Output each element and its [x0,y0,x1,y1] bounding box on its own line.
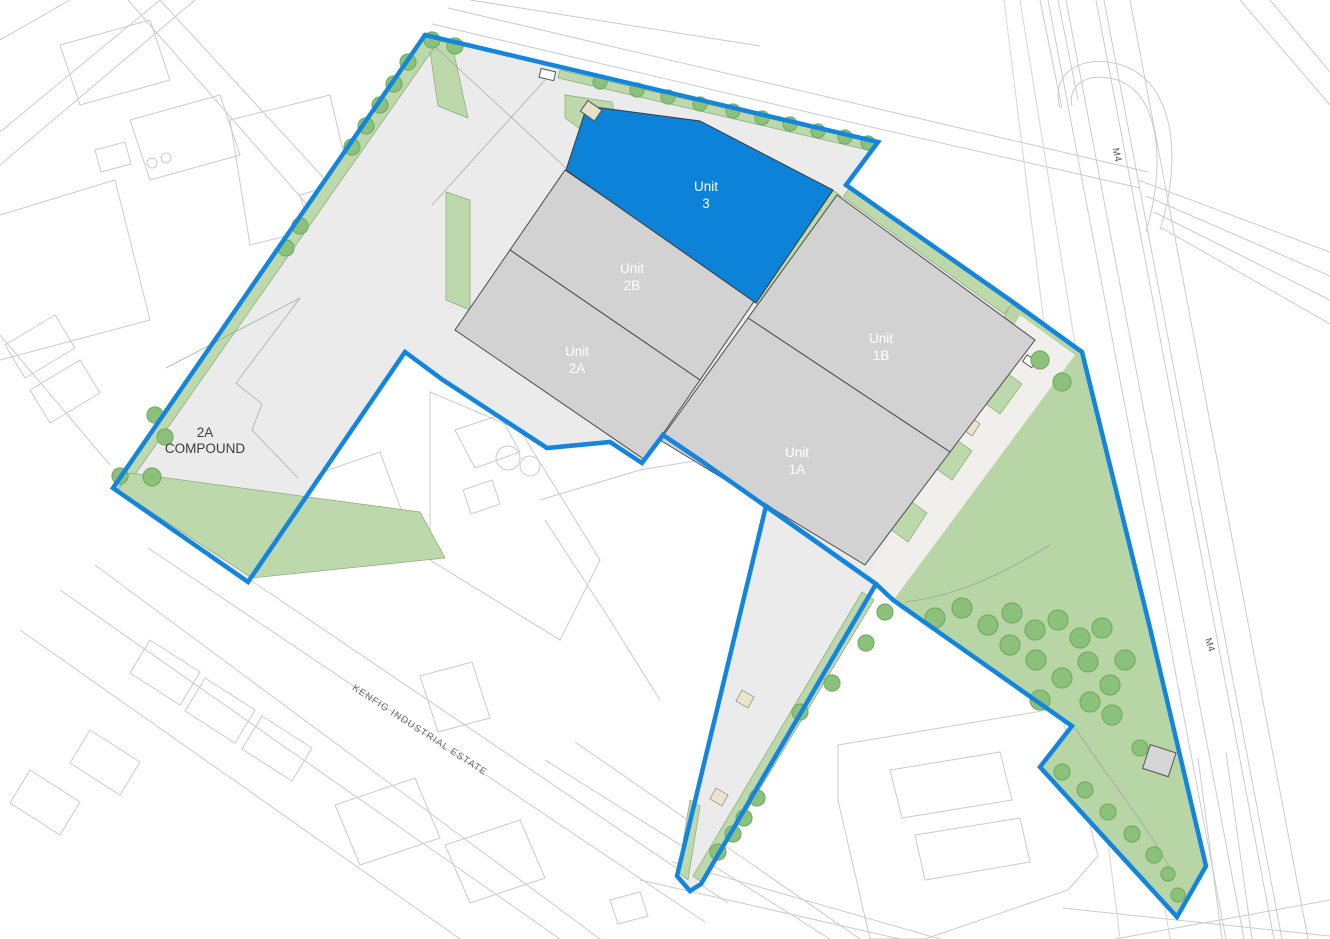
site-plan-map: Unit3 Unit2B Unit2A Unit1B Unit1A 2ACOMP… [0,0,1330,939]
m4-label-top: M4 [1110,147,1124,163]
kenfig-road-label: KENFIG INDUSTRIAL ESTATE [350,683,489,779]
m4-label-bottom: M4 [1202,637,1217,654]
strip-west-of-2b [446,192,470,310]
